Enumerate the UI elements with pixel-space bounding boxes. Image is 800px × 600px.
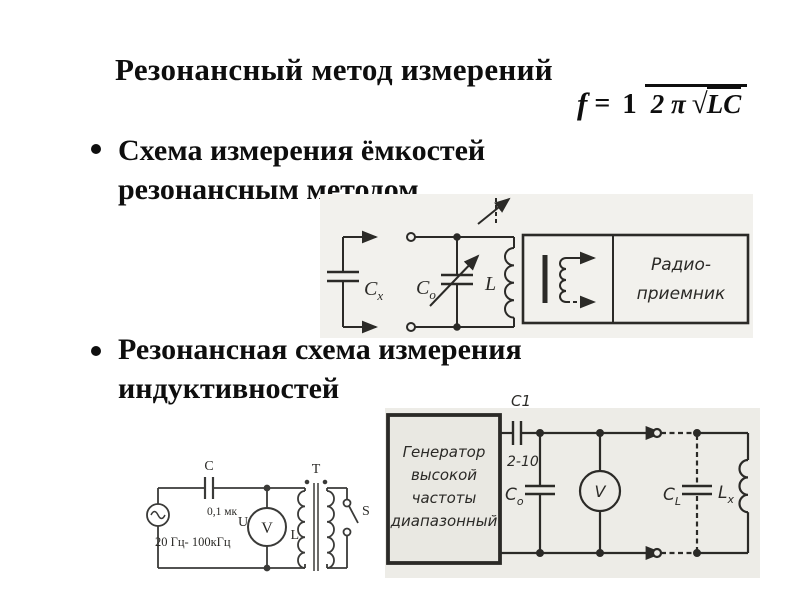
node-dot [597, 430, 603, 436]
radical-sign: √ [692, 88, 708, 120]
inductance-generator-circuit-diagram: Генератор высокой частоты диапазонный C1… [385, 390, 763, 598]
c1-value-label: 2-10 [507, 454, 539, 470]
receiver-label-line2: приемник [637, 284, 726, 304]
generator-label-line3: частоты [412, 489, 477, 507]
series-capacitor-icon [205, 477, 213, 499]
formula-numerator: 1 [618, 88, 641, 123]
formula-lhs: f [577, 86, 587, 122]
input-terminal-top [407, 233, 415, 241]
c-value-label: 0,1 мк [207, 506, 238, 518]
bullet2-dot [91, 346, 101, 356]
input-terminal-bottom [407, 323, 415, 331]
generator-label-line1: Генератор [403, 443, 486, 461]
formula-equals: = [594, 88, 610, 120]
node-dot [454, 234, 460, 240]
formula-fraction: 1 2 π√LC [618, 87, 747, 121]
transformer-icon [298, 481, 334, 571]
c1-label: C1 [511, 392, 531, 410]
switch-icon [327, 488, 358, 568]
formula-denominator: 2 π√LC [645, 84, 747, 119]
page-title: Резонансный метод измерений [115, 52, 553, 88]
receiver-label-line1: Радио- [651, 255, 711, 275]
c-label: C [204, 459, 213, 474]
t-label: T [312, 462, 321, 477]
voltmeter-label: V [261, 520, 273, 537]
freq-range-label: 20 Гц- 100кГц [155, 535, 231, 549]
node-dot [597, 550, 603, 556]
generator-label-line2: высокой [411, 466, 477, 484]
node-dot [537, 550, 543, 556]
terminal-bottom [653, 549, 661, 557]
node-dot [694, 550, 700, 556]
diagram2-wires [147, 477, 358, 571]
l-label: L [484, 273, 496, 295]
capacitance-circuit-diagram: Cx Co L Радио- приемник [320, 190, 755, 342]
node-dot [694, 430, 700, 436]
node-dot [454, 324, 460, 330]
inductance-source-circuit-diagram: C 0,1 мк U 20 Гц- 100кГц V L T S [135, 450, 385, 592]
voltmeter-label: V [595, 482, 607, 501]
l-label: L [290, 528, 299, 543]
bullet1-line1: Схема измерения ёмкостей [118, 131, 485, 170]
slide: Резонансный метод измерений f = 1 2 π√LC… [0, 0, 800, 600]
bullet1-dot [91, 144, 101, 154]
generator-label-line4: диапазонный [390, 512, 498, 530]
terminal-top [653, 429, 661, 437]
u-label: U [238, 515, 248, 530]
node-dot [537, 430, 543, 436]
formula-coeff: 2 π [651, 89, 686, 119]
formula-radicand: LC [707, 86, 742, 119]
resonance-formula: f = 1 2 π√LC [577, 86, 747, 122]
ac-source-icon [147, 488, 169, 568]
s-label: S [362, 504, 370, 519]
